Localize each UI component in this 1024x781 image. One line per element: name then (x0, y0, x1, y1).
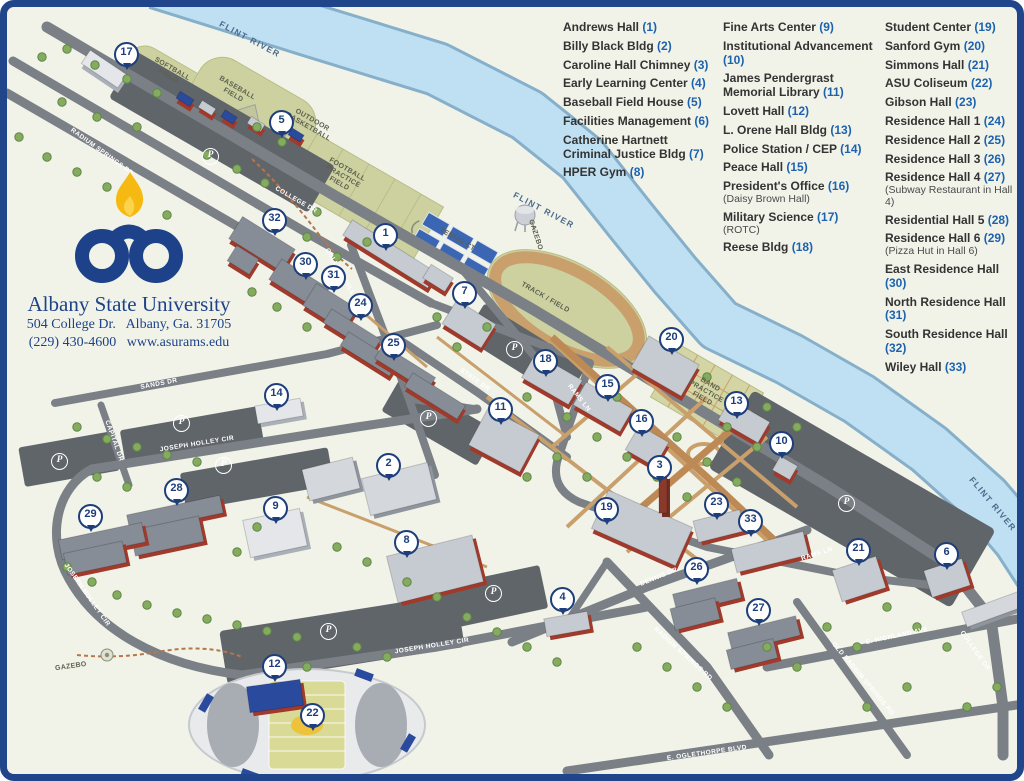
marker-21: 21 (846, 538, 871, 563)
marker-27: 27 (746, 598, 771, 623)
legend-item: Residence Hall 1 (24) (885, 115, 1021, 129)
marker-13: 13 (724, 391, 749, 416)
legend-item-note: (ROTC) (723, 225, 883, 237)
marker-20: 20 (659, 327, 684, 352)
parking-icon: P (420, 410, 437, 427)
legend-column: Fine Arts Center (9)Institutional Advanc… (723, 21, 883, 260)
marker-19: 19 (594, 497, 619, 522)
marker-24: 24 (348, 293, 373, 318)
legend-item-name: Facilities Management (563, 114, 691, 128)
legend-item: Student Center (19) (885, 21, 1021, 35)
legend-item: James Pendergrast Memorial Library (11) (723, 72, 883, 100)
legend-item-name: Residence Hall 1 (885, 114, 980, 128)
legend-item: Residence Hall 2 (25) (885, 134, 1021, 148)
university-address: 504 College Dr. Albany, Ga. 31705 (15, 316, 243, 334)
legend-item-name: James Pendergrast Memorial Library (723, 71, 834, 99)
legend-item: Residential Hall 5 (28) (885, 214, 1021, 228)
legend-item-name: Residence Hall 6 (885, 231, 980, 245)
marker-11: 11 (488, 397, 513, 422)
legend-column: Student Center (19)Sanford Gym (20)Simmo… (885, 21, 1021, 380)
legend-item: Lovett Hall (12) (723, 105, 883, 119)
legend-item-name: President's Office (723, 179, 825, 193)
legend-item: Facilities Management (6) (563, 115, 717, 129)
marker-10: 10 (769, 431, 794, 456)
legend-item-name: Military Science (723, 210, 814, 224)
legend-item: Catherine Hartnett Criminal Justice Bldg… (563, 134, 717, 162)
legend-item: Gibson Hall (23) (885, 96, 1021, 110)
legend-item-number: (26) (980, 152, 1005, 166)
legend-item-name: Simmons Hall (885, 58, 964, 72)
legend-item-name: Early Learning Center (563, 76, 688, 90)
legend-item-name: Fine Arts Center (723, 20, 816, 34)
legend-item: L. Orene Hall Bldg (13) (723, 124, 883, 138)
legend-item-note: (Pizza Hut in Hall 6) (885, 246, 1021, 258)
legend-item-name: Caroline Hall Chimney (563, 58, 690, 72)
marker-15: 15 (595, 374, 620, 399)
legend-item-note: (Subway Restaurant in Hall 4) (885, 185, 1021, 209)
university-brand: Albany State University 504 College Dr. … (15, 163, 243, 351)
marker-33: 33 (738, 509, 763, 534)
legend-item-number: (24) (980, 114, 1005, 128)
legend-item: Institutional Advancement (10) (723, 40, 883, 68)
legend-item-number: (33) (942, 360, 967, 374)
legend-item-name: L. Orene Hall Bldg (723, 123, 827, 137)
legend-item-name: Residence Hall 4 (885, 170, 980, 184)
parking-icon: P (51, 453, 68, 470)
marker-5: 5 (269, 110, 294, 135)
legend-item-number: (11) (820, 85, 844, 99)
legend-item-number: (21) (964, 58, 989, 72)
university-contact: (229) 430-4600 www.asurams.edu (15, 334, 243, 352)
legend-item-number: (31) (885, 308, 906, 322)
parking-icon: P (173, 415, 190, 432)
legend-item-number: (6) (691, 114, 709, 128)
legend-item: HPER Gym (8) (563, 166, 717, 180)
legend-item-note: (Daisy Brown Hall) (723, 194, 883, 206)
legend-item-number: (17) (814, 210, 839, 224)
legend-item-number: (1) (639, 20, 657, 34)
legend-item: Residence Hall 4 (27)(Subway Restaurant … (885, 171, 1021, 208)
legend-item-number: (2) (654, 39, 672, 53)
legend-item: President's Office (16)(Daisy Brown Hall… (723, 180, 883, 206)
marker-18: 18 (533, 349, 558, 374)
legend-item: Andrews Hall (1) (563, 21, 717, 35)
parking-icon: P (215, 457, 232, 474)
legend-item-number: (8) (626, 165, 644, 179)
legend-item: Wiley Hall (33) (885, 361, 1021, 375)
legend-item-name: Wiley Hall (885, 360, 942, 374)
marker-8: 8 (394, 530, 419, 555)
legend-item-number: (7) (686, 147, 704, 161)
legend-column: Andrews Hall (1)Billy Black Bldg (2)Caro… (563, 21, 717, 185)
legend-item-name: Sanford Gym (885, 39, 960, 53)
legend-item: Early Learning Center (4) (563, 77, 717, 91)
marker-26: 26 (684, 557, 709, 582)
marker-2: 2 (376, 453, 401, 478)
legend-item-number: (14) (837, 142, 862, 156)
legend-item-name: North Residence Hall (885, 295, 1006, 309)
legend-item-name: East Residence Hall (885, 262, 999, 276)
legend-item-number: (19) (971, 20, 996, 34)
legend-item-number: (18) (788, 240, 813, 254)
marker-23: 23 (704, 492, 729, 517)
legend-item-name: Lovett Hall (723, 104, 784, 118)
legend-item-name: Gibson Hall (885, 95, 952, 109)
legend-item-number: (32) (885, 341, 906, 355)
parking-icon: P (506, 341, 523, 358)
legend-item-name: Institutional Advancement (723, 39, 873, 53)
legend-item-number: (16) (825, 179, 850, 193)
legend-item-number: (4) (688, 76, 706, 90)
flame-icon (116, 172, 143, 217)
parking-icon: P (838, 495, 855, 512)
legend-item-name: Baseball Field House (563, 95, 684, 109)
marker-4: 4 (550, 587, 575, 612)
legend-item-name: Residential Hall 5 (885, 213, 984, 227)
legend-item-name: ASU Coliseum (885, 76, 968, 90)
legend-item: East Residence Hall (30) (885, 263, 1021, 291)
legend-item: Baseball Field House (5) (563, 96, 717, 110)
legend-item-name: Billy Black Bldg (563, 39, 654, 53)
legend-item-name: HPER Gym (563, 165, 626, 179)
legend-item: ASU Coliseum (22) (885, 77, 1021, 91)
as-monogram (82, 232, 176, 277)
campus-map: RADIUM SPRINGS RDCOLLEGE DRCOLLEGE HILLS… (0, 0, 1024, 781)
legend-item-number: (15) (783, 160, 808, 174)
legend-item-number: (13) (827, 123, 852, 137)
legend-item: Simmons Hall (21) (885, 59, 1021, 73)
marker-25: 25 (381, 333, 406, 358)
marker-30: 30 (293, 252, 318, 277)
legend-item-name: Andrews Hall (563, 20, 639, 34)
legend-item-number: (12) (784, 104, 809, 118)
legend-item: Billy Black Bldg (2) (563, 40, 717, 54)
marker-9: 9 (263, 496, 288, 521)
legend-item-number: (22) (968, 76, 993, 90)
legend-item: Peace Hall (15) (723, 161, 883, 175)
legend-item-number: (9) (816, 20, 834, 34)
parking-icon: P (320, 623, 337, 640)
marker-12: 12 (262, 654, 287, 679)
legend-item: Reese Bldg (18) (723, 241, 883, 255)
marker-7: 7 (452, 281, 477, 306)
legend-item: Caroline Hall Chimney (3) (563, 59, 717, 73)
university-name: Albany State University (15, 293, 243, 316)
legend-item-name: Student Center (885, 20, 971, 34)
legend-item-number: (10) (723, 53, 744, 67)
marker-29: 29 (78, 504, 103, 529)
legend-item-number: (29) (980, 231, 1005, 245)
legend-item: Sanford Gym (20) (885, 40, 1021, 54)
marker-16: 16 (629, 409, 654, 434)
marker-22: 22 (300, 703, 325, 728)
legend-item: Residence Hall 6 (29)(Pizza Hut in Hall … (885, 232, 1021, 258)
water-tower (515, 205, 535, 232)
legend-item: Fine Arts Center (9) (723, 21, 883, 35)
parking-icon: P (485, 585, 502, 602)
legend-item: Police Station / CEP (14) (723, 143, 883, 157)
marker-14: 14 (264, 383, 289, 408)
legend-item-name: Catherine Hartnett Criminal Justice Bldg (563, 133, 686, 161)
legend-item-number: (5) (684, 95, 702, 109)
legend-item-name: South Residence Hall (885, 327, 1008, 341)
marker-31: 31 (321, 265, 346, 290)
marker-32: 32 (262, 208, 287, 233)
legend-item-number: (23) (952, 95, 977, 109)
legend-item-number: (27) (980, 170, 1005, 184)
legend-item-number: (25) (980, 133, 1005, 147)
marker-6: 6 (934, 542, 959, 567)
legend-item: South Residence Hall (32) (885, 328, 1021, 356)
legend-item-number: (20) (960, 39, 985, 53)
legend-item-name: Reese Bldg (723, 240, 788, 254)
marker-1: 1 (373, 223, 398, 248)
legend-item-name: Peace Hall (723, 160, 783, 174)
legend-item-number: (3) (690, 58, 708, 72)
gazebo-structure (101, 649, 113, 661)
legend-item-name: Residence Hall 3 (885, 152, 980, 166)
marker-17: 17 (114, 42, 139, 67)
legend-item-name: Police Station / CEP (723, 142, 837, 156)
legend-item: Military Science (17)(ROTC) (723, 211, 883, 237)
marker-28: 28 (164, 478, 189, 503)
legend-item-number: (30) (885, 276, 906, 290)
marker-3: 3 (647, 455, 672, 480)
legend-item: North Residence Hall (31) (885, 296, 1021, 324)
legend-item: Residence Hall 3 (26) (885, 153, 1021, 167)
legend-item-number: (28) (984, 213, 1009, 227)
legend-item-name: Residence Hall 2 (885, 133, 980, 147)
asu-logo (63, 163, 195, 291)
